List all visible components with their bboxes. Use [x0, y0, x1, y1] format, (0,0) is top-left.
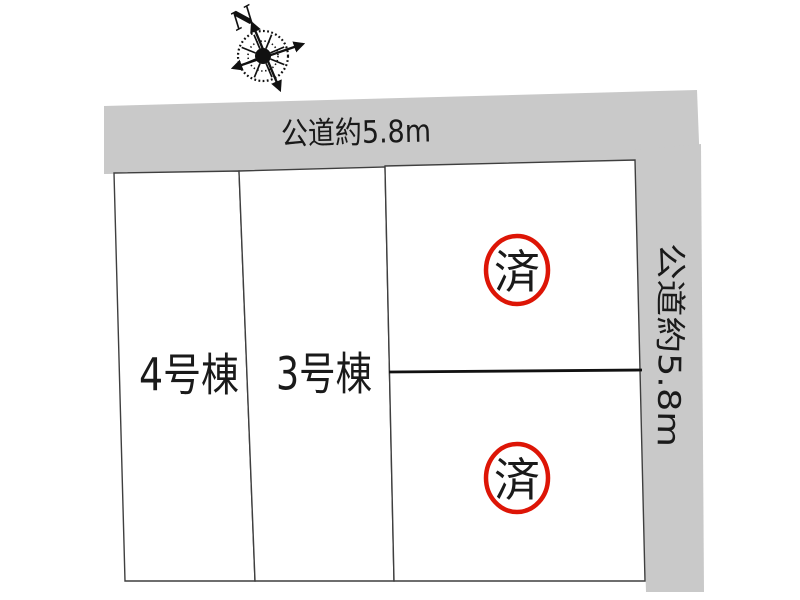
compass-hub: [255, 48, 271, 64]
road-top-label: 公道約5.8m: [281, 113, 432, 152]
lot-3-label: 3号棟: [276, 348, 372, 401]
sold-stamp-lower: 済: [486, 444, 548, 512]
diagram-svg: 公道約5.8m 公道約5.8m 4号棟 3号棟 済 済: [0, 0, 800, 600]
road-right-label: 公道約5.8m: [650, 243, 689, 447]
lot-4-label: 4号棟: [139, 349, 239, 402]
lot-right-section-divider: [389, 370, 642, 372]
stamp-text: 済: [494, 453, 540, 507]
plot-layout-diagram: 公道約5.8m 公道約5.8m 4号棟 3号棟 済 済: [0, 0, 800, 600]
sold-stamp-upper: 済: [486, 236, 548, 304]
stamp-text: 済: [494, 245, 540, 299]
